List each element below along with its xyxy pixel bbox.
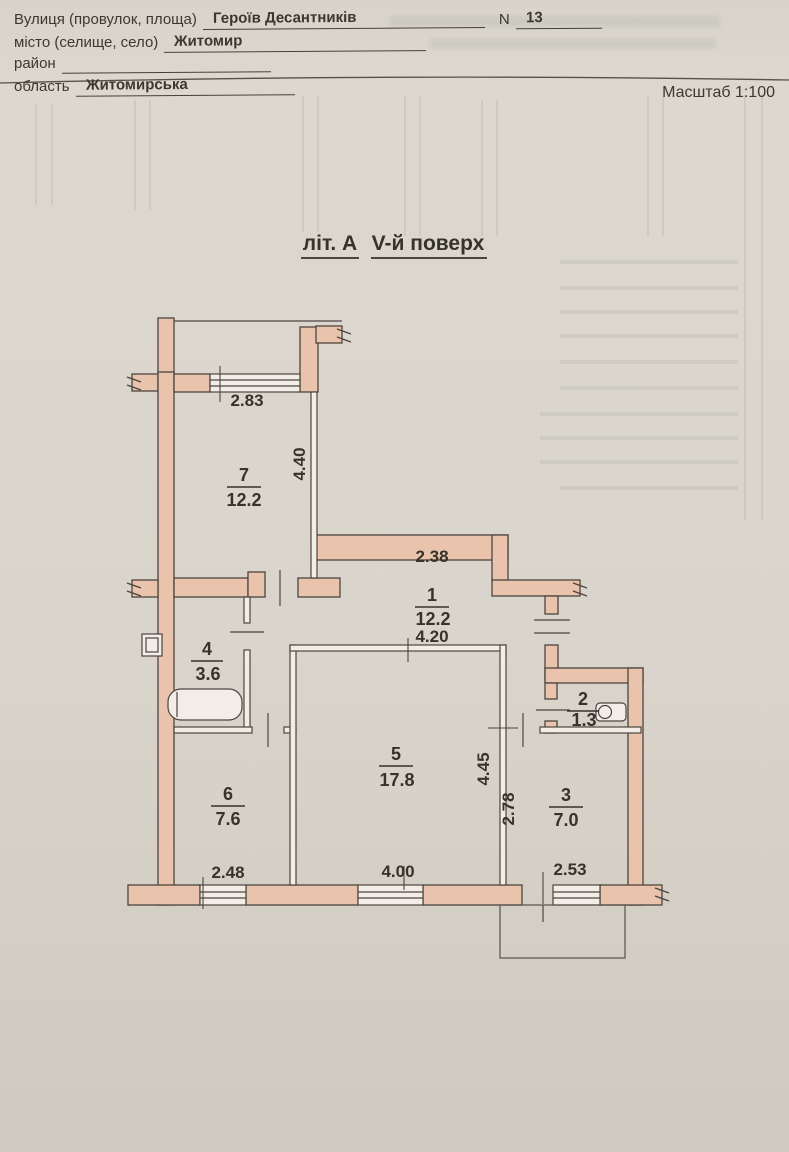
district-line: район [14, 54, 602, 73]
dim-2-83: 2.83 [230, 391, 263, 410]
dim-2-53: 2.53 [553, 860, 586, 879]
svg-text:17.8: 17.8 [379, 770, 414, 790]
street-line: Вулиця (провулок, площа) Героїв Десантни… [14, 8, 602, 29]
scale-label: Масштаб 1:100 [662, 84, 775, 102]
bathtub-icon [168, 689, 242, 720]
svg-text:1.3: 1.3 [571, 710, 596, 730]
svg-text:7.0: 7.0 [553, 810, 578, 830]
toilet-icon [596, 703, 626, 721]
dim-4-40: 4.40 [290, 447, 309, 480]
room-7-label: 7 12.2 [226, 465, 261, 510]
dim-2-38: 2.38 [415, 547, 448, 566]
svg-text:3: 3 [561, 785, 571, 805]
region-line: область Житомирська [14, 75, 602, 96]
svg-text:1: 1 [427, 585, 437, 605]
outer-walls [128, 318, 662, 905]
svg-text:4: 4 [202, 639, 212, 659]
svg-text:6: 6 [223, 784, 233, 804]
window-room3 [553, 885, 600, 905]
dim-2-78: 2.78 [499, 792, 518, 825]
house-number-value: 13 [516, 8, 602, 30]
balcony-outline [500, 905, 625, 958]
svg-text:12.2: 12.2 [415, 609, 450, 629]
room-6-label: 6 7.6 [211, 784, 245, 829]
window-room5 [358, 885, 423, 905]
svg-text:5: 5 [391, 744, 401, 764]
district-label: район [14, 54, 62, 73]
address-form: Вулиця (провулок, площа) Героїв Десантни… [14, 8, 602, 98]
dimension-labels: 2.83 4.40 2.38 4.20 4.45 2.78 2.48 4.00 … [211, 391, 586, 882]
windows [200, 374, 600, 905]
plan-floor: V-й поверх [372, 232, 485, 255]
room-5-label: 5 17.8 [379, 744, 415, 790]
region-value: Житомирська [75, 74, 294, 97]
region-label: область [14, 77, 76, 96]
window-room6 [200, 885, 246, 905]
svg-text:3.6: 3.6 [195, 664, 220, 684]
svg-text:7.6: 7.6 [215, 809, 240, 829]
city-value: Житомир [164, 30, 426, 53]
sink-icon [142, 634, 162, 656]
dim-4-00: 4.00 [381, 862, 414, 881]
dim-2-48: 2.48 [211, 863, 244, 882]
city-label: місто (селище, село) [14, 33, 164, 52]
window-room7 [210, 374, 300, 392]
street-label: Вулиця (провулок, площа) [14, 10, 203, 29]
room-1-label: 1 12.2 [415, 585, 451, 629]
district-value [62, 70, 271, 73]
room-2-label: 2 1.3 [567, 689, 599, 730]
plan-title: літ. А V-й поверх [301, 232, 487, 258]
plan-letter: літ. А [303, 232, 357, 255]
room-4-label: 4 3.6 [191, 639, 223, 684]
dim-4-45: 4.45 [474, 752, 493, 785]
svg-text:7: 7 [239, 465, 249, 485]
svg-text:12.2: 12.2 [226, 490, 261, 510]
svg-text:2: 2 [578, 689, 588, 709]
dim-4-20: 4.20 [415, 627, 448, 646]
house-number-label: N [499, 10, 516, 29]
floor-plan: літ. А V-й поверх [0, 0, 789, 1152]
dimension-ticks [203, 366, 543, 909]
street-value: Героїв Десантників [203, 7, 485, 30]
room-3-label: 3 7.0 [549, 785, 583, 830]
city-line: місто (селище, село) Житомир [14, 31, 602, 52]
